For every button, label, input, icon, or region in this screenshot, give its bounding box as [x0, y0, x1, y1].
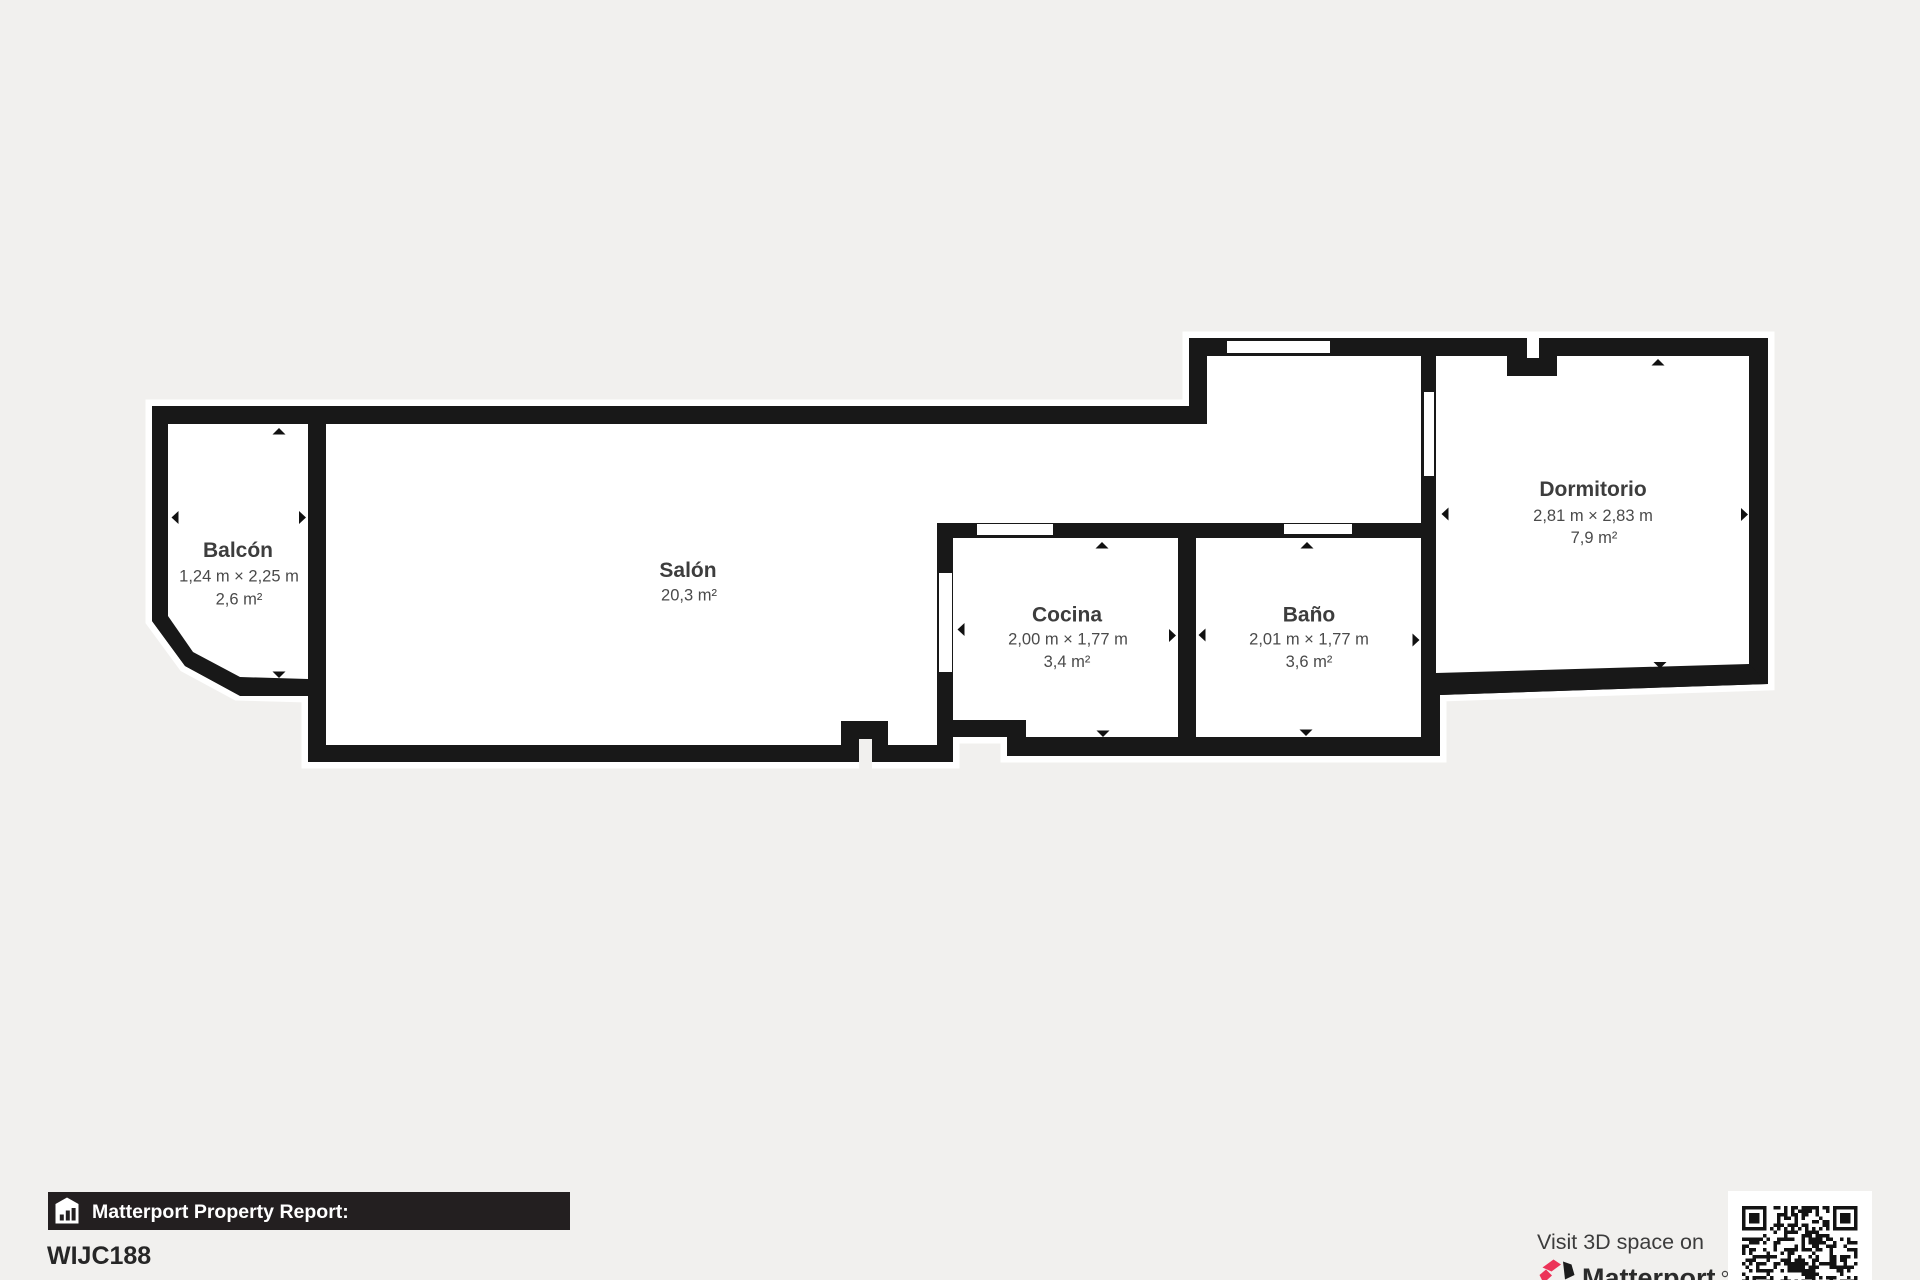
- svg-text:1,24 m × 2,25 m: 1,24 m × 2,25 m: [179, 568, 299, 586]
- svg-text:Matterport Property Report:: Matterport Property Report:: [92, 1201, 349, 1223]
- svg-text:3,6 m²: 3,6 m²: [1286, 653, 1333, 671]
- svg-text:3,4 m²: 3,4 m²: [1044, 653, 1091, 671]
- svg-text:7,9 m²: 7,9 m²: [1571, 529, 1618, 547]
- svg-text:2,6 m²: 2,6 m²: [216, 591, 263, 609]
- svg-text:Balcón: Balcón: [203, 539, 273, 562]
- svg-text:Matterport: Matterport: [1582, 1263, 1716, 1280]
- svg-text:Visit 3D space on: Visit 3D space on: [1537, 1230, 1704, 1254]
- svg-text:2,01 m × 1,77 m: 2,01 m × 1,77 m: [1249, 631, 1369, 649]
- svg-text:20,3 m²: 20,3 m²: [661, 587, 717, 605]
- svg-text:Cocina: Cocina: [1032, 604, 1102, 627]
- svg-text:2,81 m × 2,83 m: 2,81 m × 2,83 m: [1533, 507, 1653, 525]
- svg-text:Baño: Baño: [1283, 604, 1336, 627]
- svg-text:Dormitorio: Dormitorio: [1539, 478, 1646, 501]
- svg-text:2,00 m × 1,77 m: 2,00 m × 1,77 m: [1008, 631, 1128, 649]
- svg-text:WIJC188: WIJC188: [47, 1242, 151, 1270]
- svg-text:Salón: Salón: [659, 559, 716, 582]
